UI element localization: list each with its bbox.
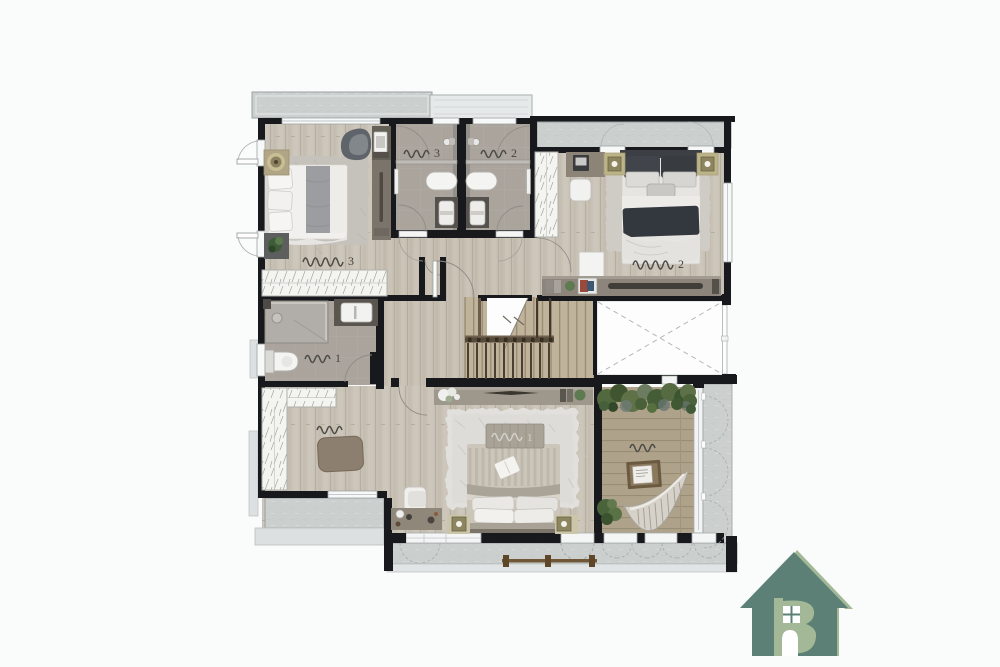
svg-text:1: 1 (335, 351, 341, 365)
svg-text:3: 3 (434, 146, 440, 160)
svg-text:2: 2 (678, 257, 684, 271)
svg-text:2: 2 (511, 146, 517, 160)
svg-text:1: 1 (527, 432, 533, 444)
svg-text:3: 3 (348, 254, 354, 268)
